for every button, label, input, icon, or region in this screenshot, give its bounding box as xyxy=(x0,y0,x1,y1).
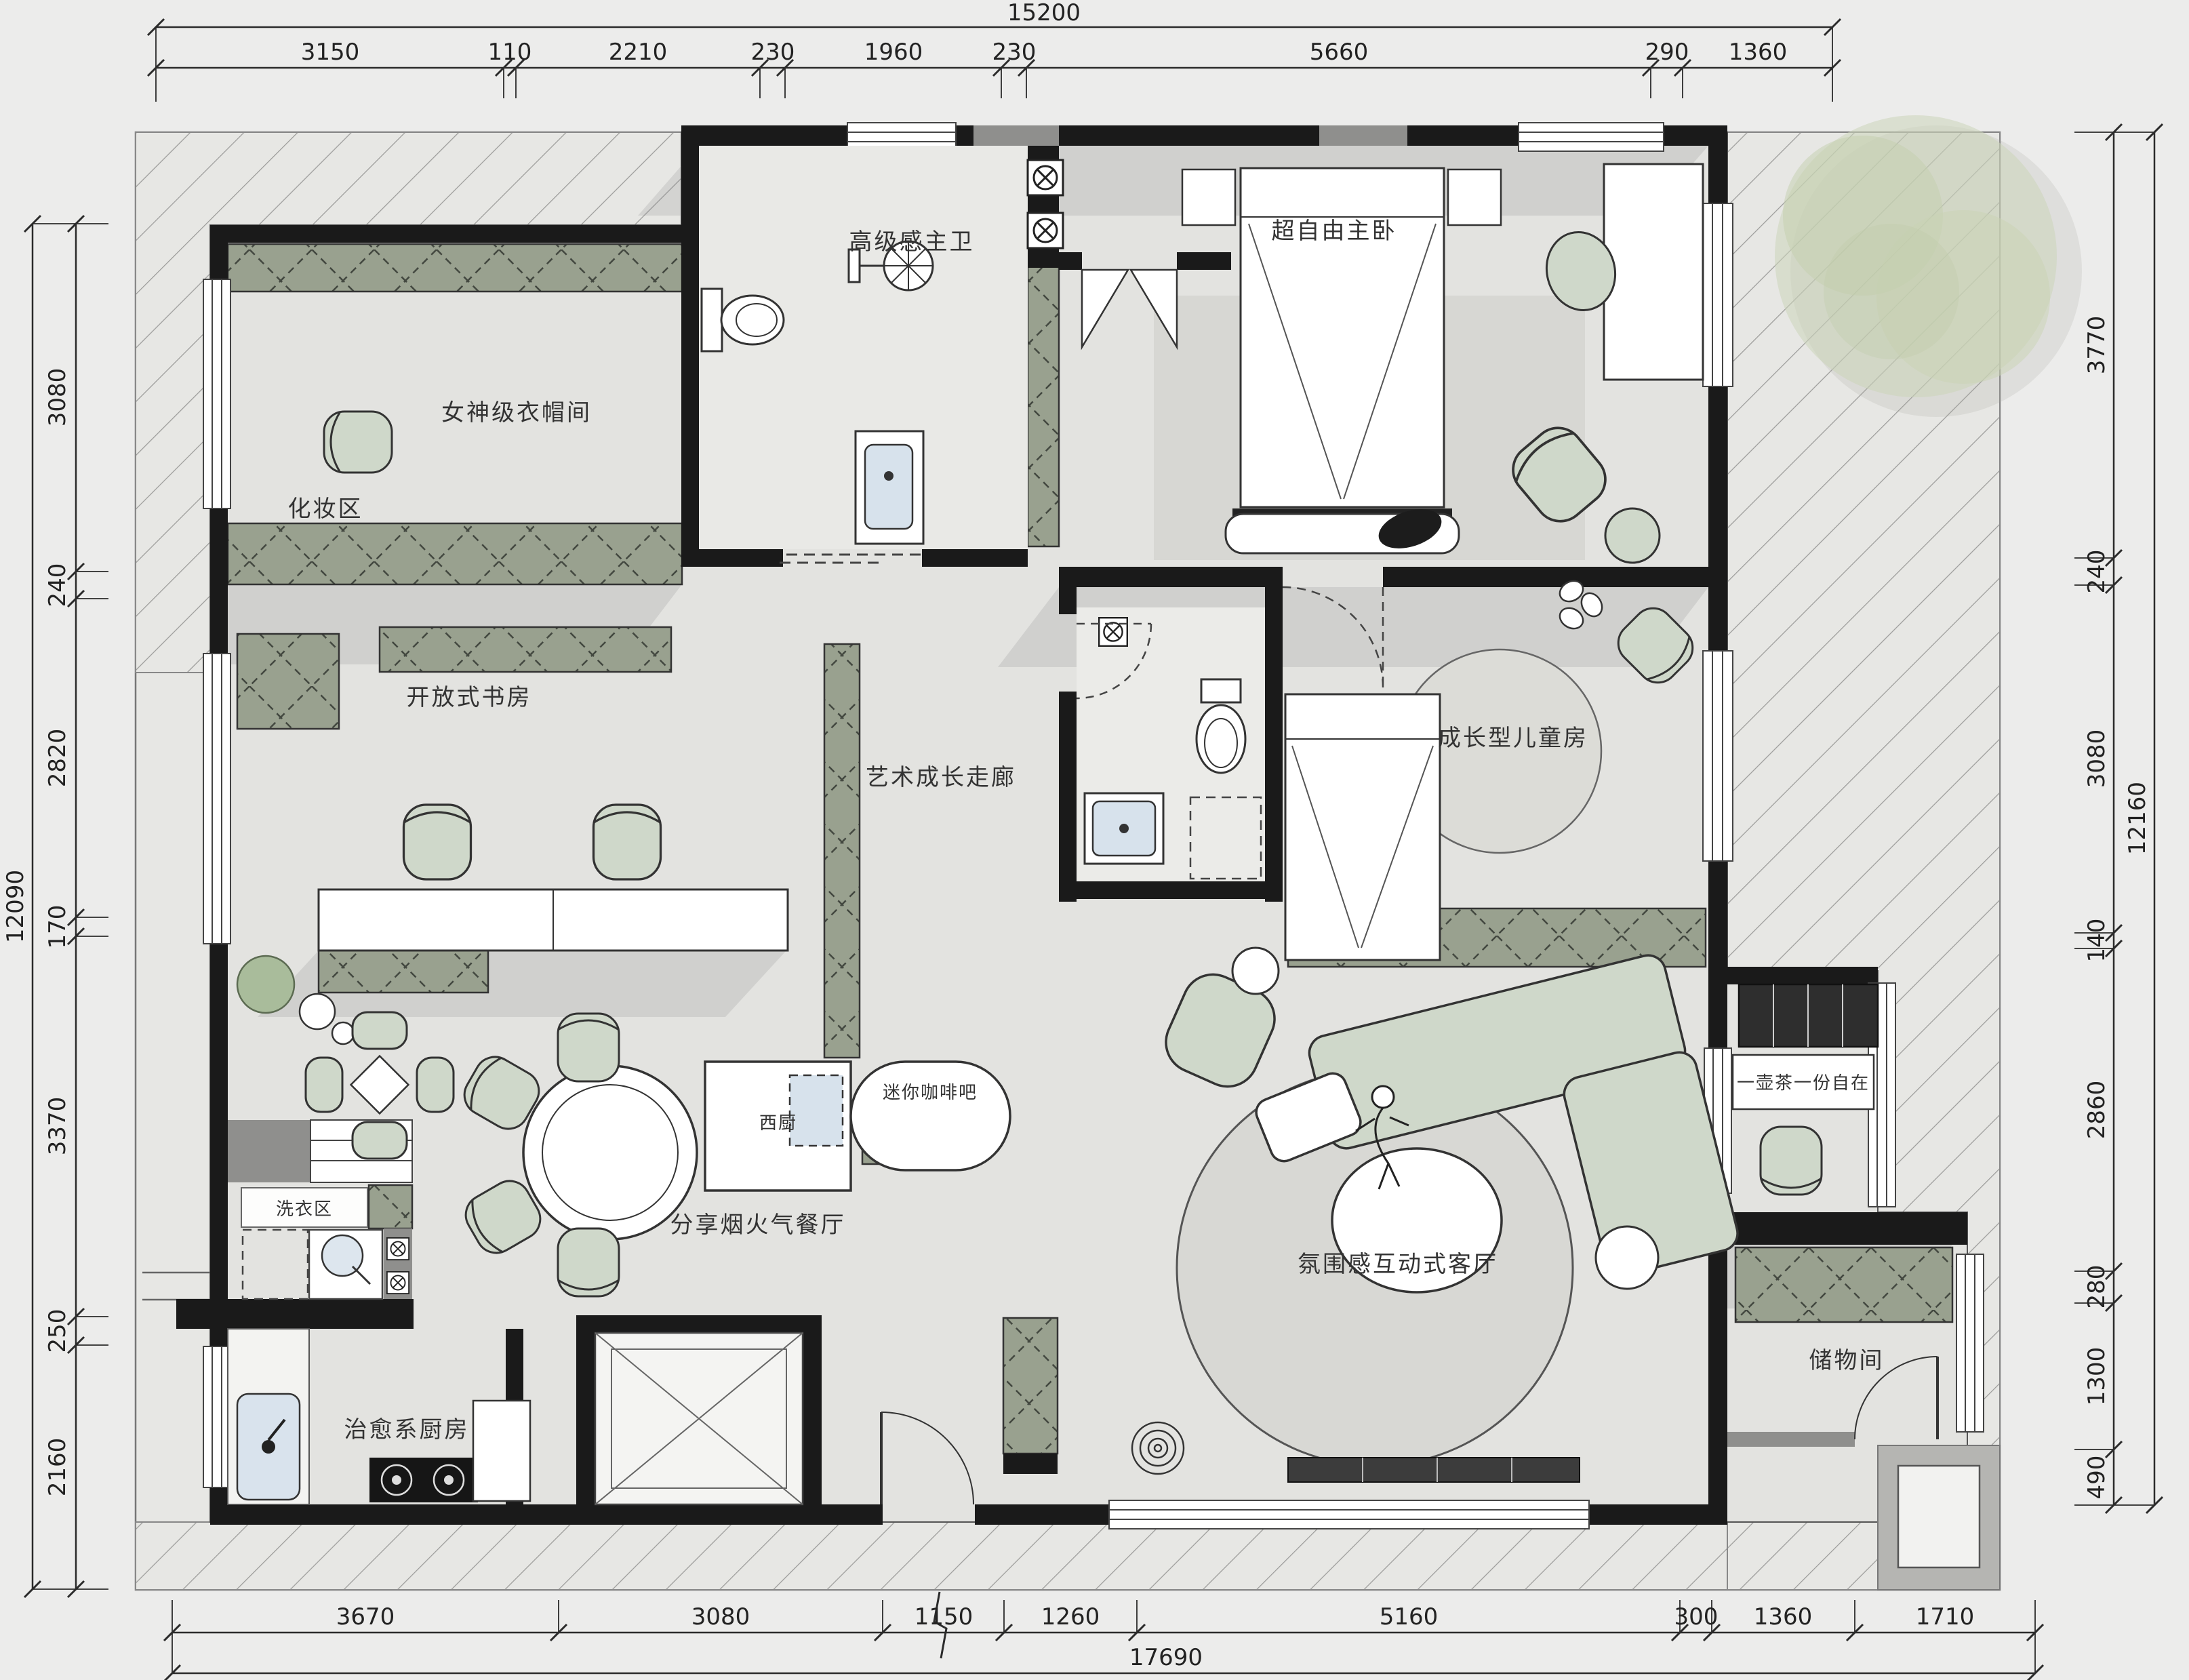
dim-value: 1360 xyxy=(1729,39,1788,66)
dim-value: 140 xyxy=(2083,919,2110,963)
wall-tea-top xyxy=(1727,967,1878,984)
dim-value: 230 xyxy=(992,39,1037,66)
dim-value: 2820 xyxy=(44,729,71,788)
window-cloak-left xyxy=(203,279,230,508)
label-master-bath: 高级感主卫 xyxy=(849,228,975,256)
elevator-shaft xyxy=(595,1333,803,1504)
exhaust-fan-icon xyxy=(1099,618,1127,646)
label-tea-corner: 一壶茶一份自在 xyxy=(1737,1073,1870,1094)
floor-plan-page: 高级感主卫 超自由主卧 女神级衣帽间 化妆区 开放式书房 艺术成长走廊 成长型儿… xyxy=(0,0,2189,1680)
wall-cloak-bath-divider xyxy=(681,146,699,567)
label-west-kitchen: 西厨 xyxy=(759,1113,797,1134)
dim-value: 1150 xyxy=(915,1603,973,1631)
coffee-bar-counter xyxy=(851,1062,1010,1170)
room-cloakroom xyxy=(324,412,392,473)
dim-value: 1360 xyxy=(1754,1603,1813,1631)
dim-value: 5160 xyxy=(1380,1603,1439,1631)
makeup-chair xyxy=(324,412,392,473)
faucet xyxy=(262,1440,275,1454)
side-ball xyxy=(1232,948,1279,994)
dim-value: 110 xyxy=(488,39,532,66)
dim-value: 3150 xyxy=(301,39,360,66)
wall-kids-bath-bottom xyxy=(1059,881,1283,899)
label-master-bedroom: 超自由主卧 xyxy=(1272,218,1397,245)
side-table-small xyxy=(332,1022,354,1044)
window-storage-right xyxy=(1956,1254,1984,1432)
wall-laundry-bottom xyxy=(176,1299,414,1329)
dim-value: 240 xyxy=(2083,550,2110,594)
wall-shaft-right xyxy=(803,1333,822,1504)
window-living-bottom xyxy=(1109,1500,1589,1529)
laundry-cabinet xyxy=(369,1185,412,1228)
dim-value: 3080 xyxy=(2083,729,2110,788)
dim-value: 3080 xyxy=(691,1603,750,1631)
window-kids-right xyxy=(1703,651,1733,861)
dim-value: 250 xyxy=(44,1309,71,1353)
wall-shaft-left xyxy=(576,1333,595,1504)
wall-kids-bath-right xyxy=(1265,587,1283,902)
laundry-top-gray xyxy=(228,1120,310,1182)
dim-value: 170 xyxy=(44,905,71,949)
dim-value: 280 xyxy=(2083,1265,2110,1309)
dim-value: 1260 xyxy=(1041,1603,1100,1631)
dim-value: 2210 xyxy=(609,39,668,66)
exhaust-fan-icon xyxy=(1028,160,1063,195)
side-table xyxy=(300,994,335,1029)
kids-toilet-icon xyxy=(1197,679,1245,773)
label-kitchen: 治愈系厨房 xyxy=(344,1416,470,1443)
dim-total-bottom: 17690 xyxy=(1129,1644,1203,1671)
study-cabinet-top xyxy=(380,627,671,672)
floor-plan-canvas: 高级感主卫 超自由主卧 女神级衣帽间 化妆区 开放式书房 艺术成长走廊 成长型儿… xyxy=(0,0,2189,1680)
dining-chair xyxy=(558,1014,619,1081)
wall-bath-bottom-left xyxy=(681,549,783,567)
tea-rug xyxy=(1739,984,1878,1047)
exhaust-fan-icon xyxy=(1028,213,1063,248)
label-study: 开放式书房 xyxy=(407,684,532,711)
pouf-ball xyxy=(1596,1226,1658,1289)
wall-bottom-3 xyxy=(1588,1504,1727,1525)
fridge xyxy=(473,1401,530,1501)
dim-total-right: 12160 xyxy=(2124,782,2151,855)
island-sink xyxy=(790,1075,843,1146)
wall-bottom-1 xyxy=(210,1504,883,1525)
label-dining: 分享烟火气餐厅 xyxy=(670,1212,846,1239)
valve-icon xyxy=(387,1238,409,1260)
label-laundry: 洗衣区 xyxy=(276,1199,333,1220)
dim-value: 1960 xyxy=(864,39,923,66)
dim-total-top: 15200 xyxy=(1007,0,1081,26)
window-bedroom-top xyxy=(1519,123,1664,151)
window-kitchen-left xyxy=(203,1346,230,1487)
corridor-bookshelf xyxy=(824,644,860,1058)
wardrobe-bottom xyxy=(228,523,682,584)
wall-bedroom-kids-divider-right xyxy=(1383,567,1727,587)
dim-value: 3080 xyxy=(44,368,71,427)
dim-value: 5660 xyxy=(1310,39,1369,66)
label-corridor: 艺术成长走廊 xyxy=(866,764,1016,791)
nightstand-left xyxy=(1182,169,1235,225)
vanity-sink xyxy=(856,431,923,544)
label-cloakroom: 女神级衣帽间 xyxy=(441,399,592,426)
ottoman xyxy=(1605,508,1660,563)
wall-cloak-top xyxy=(210,225,685,243)
dim-value: 2160 xyxy=(44,1438,71,1497)
entry-shoe-cabinet xyxy=(1003,1318,1058,1454)
study-chair xyxy=(594,805,661,879)
dim-value: 3670 xyxy=(336,1603,395,1631)
study-cabinet-desk xyxy=(319,951,488,993)
corridor-cabinet xyxy=(1028,266,1059,546)
dim-total-left: 12090 xyxy=(2,870,29,943)
kids-bed xyxy=(1285,694,1440,960)
window-study-left xyxy=(203,654,230,944)
label-storage: 储物间 xyxy=(1809,1347,1885,1374)
room-kids-bath xyxy=(1077,607,1265,881)
dim-value: 3370 xyxy=(44,1097,71,1156)
wardrobe-top xyxy=(228,244,682,292)
nightstand-right xyxy=(1448,169,1501,225)
kids-vanity xyxy=(1085,793,1163,864)
storage-cabinet xyxy=(1735,1247,1952,1322)
label-coffee-bar: 迷你咖啡吧 xyxy=(883,1083,978,1103)
tv-bench xyxy=(1288,1458,1580,1482)
dim-value: 1300 xyxy=(2083,1347,2110,1406)
study-chair xyxy=(404,805,471,879)
dim-value: 1710 xyxy=(1916,1603,1975,1631)
label-makeup-area: 化妆区 xyxy=(288,496,363,523)
valve-icon xyxy=(387,1272,409,1294)
window-bedroom-right xyxy=(1703,203,1733,386)
plant-icon xyxy=(237,956,294,1013)
dim-value: 300 xyxy=(1674,1603,1719,1631)
dim-value: 2860 xyxy=(2083,1081,2110,1140)
wall-storage-bottom xyxy=(1727,1432,1855,1447)
bottom-right-shaft xyxy=(1878,1445,2000,1590)
dining-chair xyxy=(558,1228,619,1296)
wall-bath-bottom-right xyxy=(922,549,1028,567)
dim-value: 290 xyxy=(1645,39,1689,66)
label-living-room: 氛围感互动式客厅 xyxy=(1298,1251,1498,1278)
study-cabinet-left xyxy=(237,634,339,729)
wall-shaft-top xyxy=(576,1315,822,1333)
dim-value: 240 xyxy=(44,563,71,607)
wall-bottom-2 xyxy=(975,1504,1110,1525)
dim-value: 230 xyxy=(751,39,795,66)
dim-value: 3770 xyxy=(2083,316,2110,375)
wall-bedroom-kids-divider-left xyxy=(1059,567,1283,587)
stove-icon xyxy=(369,1458,478,1502)
bedroom-desk xyxy=(1604,164,1703,380)
tea-chair xyxy=(1761,1127,1822,1195)
hatch-bottom-band xyxy=(136,1522,1727,1590)
dim-value: 490 xyxy=(2083,1456,2110,1500)
label-kids-room: 成长型儿童房 xyxy=(1438,725,1588,752)
wall-storage-top xyxy=(1727,1212,1967,1245)
room-master-bath xyxy=(699,146,1063,563)
